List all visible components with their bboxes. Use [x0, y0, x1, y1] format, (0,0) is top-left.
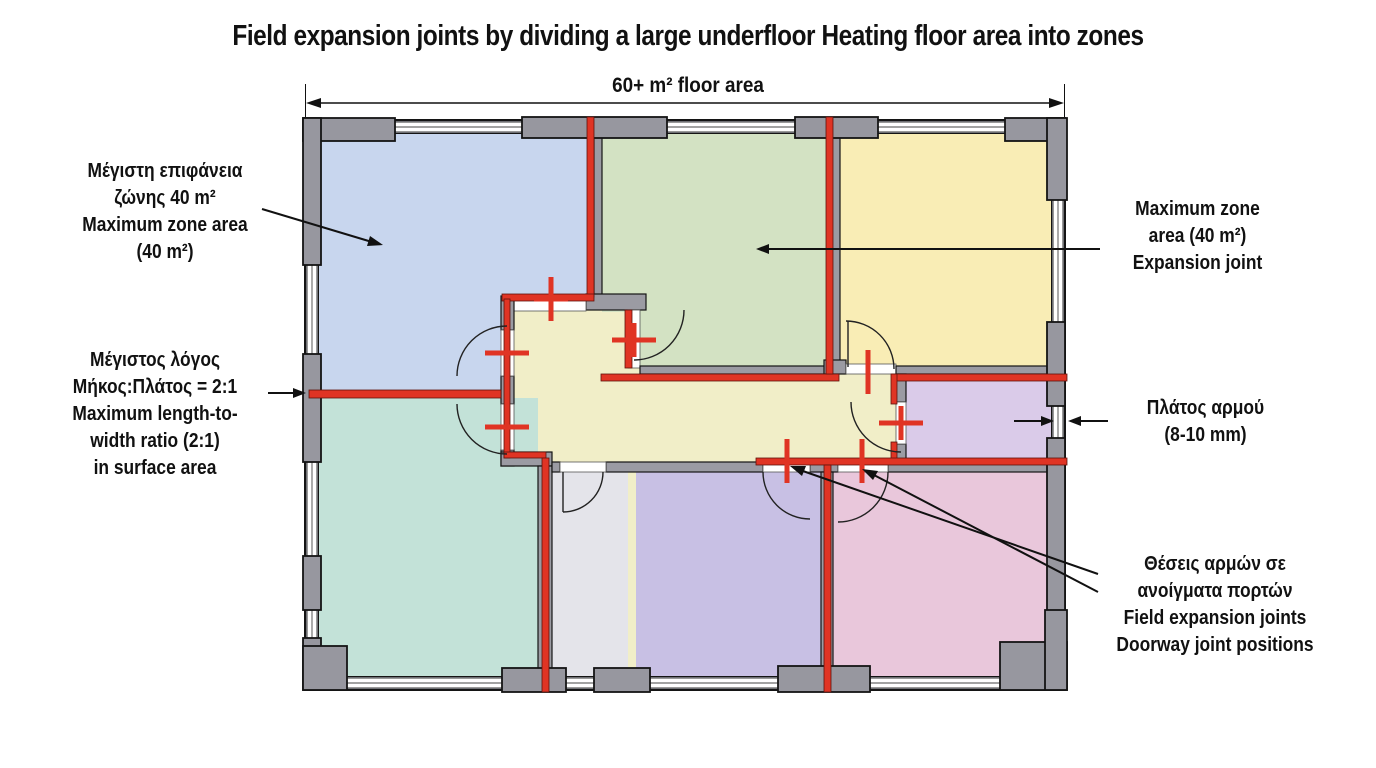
- joint-marker-bar: [899, 406, 904, 440]
- expansion-joint: [892, 374, 1067, 381]
- wall-pier: [795, 117, 878, 138]
- floor-plan: [0, 0, 1376, 768]
- expansion-joint: [504, 452, 546, 458]
- expansion-joint: [601, 374, 839, 381]
- wall-pier: [522, 117, 667, 138]
- zone-right-small: [906, 381, 1051, 458]
- wall-segment: [640, 366, 826, 374]
- expansion-joint-vertical-right: [826, 117, 833, 374]
- zone-bottom-middle: [636, 472, 821, 676]
- joint-marker-bar: [866, 350, 871, 394]
- joint-marker-bar: [505, 336, 510, 370]
- wall-segment: [586, 294, 646, 310]
- arrowhead-left-icon: [306, 98, 321, 108]
- arrowhead-right-icon: [1049, 98, 1064, 108]
- wall-pier: [303, 118, 321, 265]
- wall-pier: [303, 556, 321, 610]
- joint-marker-bar: [845, 459, 879, 464]
- wall-pier: [1047, 322, 1065, 406]
- door-opening: [560, 462, 606, 472]
- wall-segment: [552, 462, 560, 472]
- wall-segment: [606, 462, 763, 472]
- expansion-joint: [891, 374, 897, 404]
- wall-pier: [1047, 118, 1067, 200]
- joint-marker-bar: [770, 459, 804, 464]
- wall-pier: [594, 668, 650, 692]
- wall-pier: [303, 646, 347, 690]
- expansion-joint-ratio: [309, 390, 501, 398]
- joint-marker-bar: [534, 297, 568, 302]
- wall-pier: [303, 354, 321, 462]
- arrowhead-icon: [1068, 416, 1081, 426]
- wall-pier: [502, 668, 566, 692]
- expansion-joint: [542, 458, 549, 692]
- door-opening: [846, 364, 896, 374]
- wall-pier: [1045, 610, 1067, 690]
- wall-segment: [594, 134, 602, 302]
- wall-segment: [896, 366, 1051, 374]
- joint-marker-bar: [505, 410, 510, 444]
- joint-marker-bar: [632, 323, 637, 357]
- doorway-joint-marker: [866, 350, 871, 394]
- diagram-canvas: Field expansion joints by dividing a lar…: [0, 0, 1376, 768]
- expansion-joint: [824, 465, 831, 692]
- expansion-joint-vertical-left: [587, 117, 594, 297]
- dimension-arrow: [306, 84, 1065, 117]
